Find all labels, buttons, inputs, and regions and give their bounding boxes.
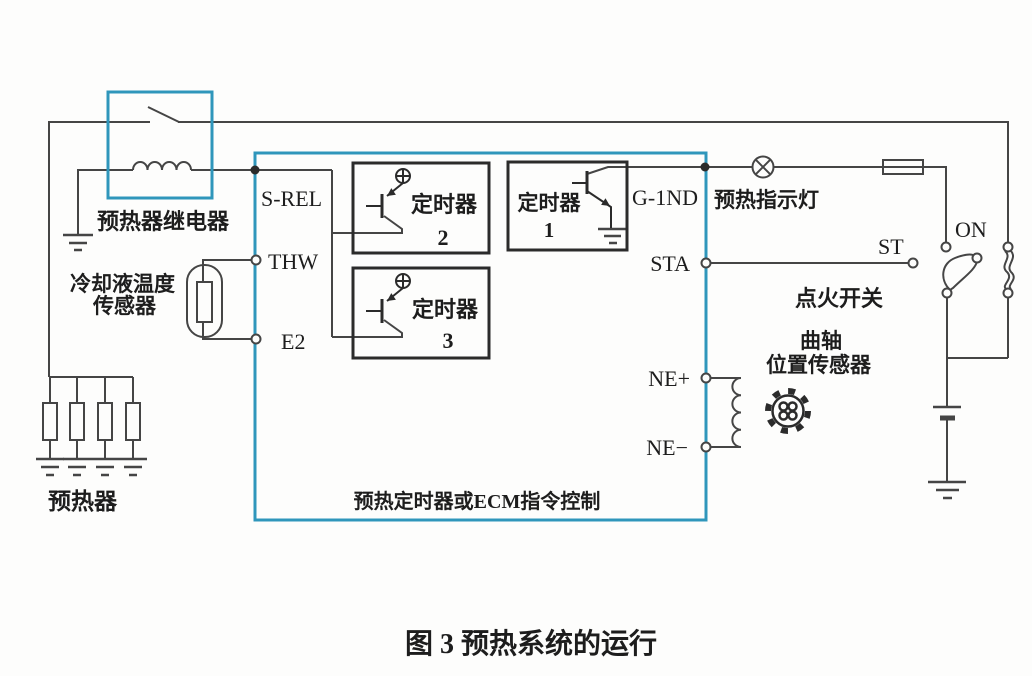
rotor-lower-contact xyxy=(943,289,952,298)
glow-plug xyxy=(43,403,57,440)
glow-relay-box xyxy=(108,92,212,198)
timer3-transistor-icon xyxy=(366,274,410,323)
coolant-sensor-label-2: 传感器 xyxy=(92,294,157,318)
timer3-label: 定时器 xyxy=(412,297,479,322)
thw-terminal xyxy=(252,256,261,265)
wavy-bottom-contact xyxy=(1004,289,1013,298)
terminal-label-thw: THW xyxy=(268,249,318,274)
labels: 预热器继电器 冷却液温度 传感器 预热器 S-REL THW E2 G-1ND … xyxy=(48,185,987,660)
glow-plug xyxy=(126,403,140,440)
ne-plus-terminal xyxy=(702,374,711,383)
glow-plugs-label: 预热器 xyxy=(48,489,118,514)
on-contact xyxy=(942,243,951,252)
terminal-label-ne-minus: NE− xyxy=(646,435,688,460)
wire-top-left xyxy=(49,122,150,377)
coolant-sensor-label-1: 冷却液温度 xyxy=(70,272,175,296)
crank-sensor-label-2: 位置传感器 xyxy=(766,353,872,377)
on-label: ON xyxy=(955,217,987,242)
figure-canvas: 预热器继电器 冷却液温度 传感器 预热器 S-REL THW E2 G-1ND … xyxy=(0,0,1032,676)
terminal-label-e2: E2 xyxy=(281,329,305,354)
ignition-switch-label: 点火开关 xyxy=(795,286,883,311)
crank-sensor-label-1: 曲轴 xyxy=(800,329,842,353)
st-label: ST xyxy=(878,234,904,259)
wire-timer3-lead xyxy=(332,320,402,337)
switch-wavy-link xyxy=(1009,251,1013,289)
terminal-label-srel: S-REL xyxy=(261,186,322,211)
glow-plug-ground-icon xyxy=(36,459,147,475)
rotor-contact xyxy=(973,254,982,263)
glow-plug-stems xyxy=(50,377,133,403)
timer2-label: 定时器 xyxy=(411,192,478,217)
glow-plug xyxy=(70,403,84,440)
srel-node xyxy=(251,166,260,175)
timer1-ground-icon xyxy=(598,229,627,243)
glow-system-diagram: 预热器继电器 冷却液温度 传感器 预热器 S-REL THW E2 G-1ND … xyxy=(0,0,1032,676)
timer1-label: 定时器 xyxy=(518,191,582,215)
glow-plug xyxy=(98,403,112,440)
timer2-transistor-icon xyxy=(366,169,410,218)
relay-coil xyxy=(133,162,191,170)
timer3-num: 3 xyxy=(443,328,454,353)
ne-pickup-coil xyxy=(732,378,741,447)
terminal-label-sta: STA xyxy=(650,251,690,276)
wire-timer1-out xyxy=(587,167,752,174)
ne-minus-terminal xyxy=(702,443,711,452)
relay-label: 预热器继电器 xyxy=(97,209,230,234)
glow-plug-tails xyxy=(50,440,133,458)
gind-node xyxy=(701,163,710,172)
wire-timer2-lead xyxy=(332,216,402,233)
terminal-label-ne-plus: NE+ xyxy=(648,366,690,391)
st-contact xyxy=(909,259,918,268)
relay-ground-icon xyxy=(63,235,93,250)
wavy-top-contact xyxy=(1004,243,1013,252)
timer2-num: 2 xyxy=(438,225,449,250)
figure-caption: 图 3 预热系统的运行 xyxy=(405,627,657,660)
wire-top-right xyxy=(178,122,1008,243)
indicator-label: 预热指示灯 xyxy=(714,188,819,212)
coolant-temp-sensor-icon xyxy=(187,265,222,337)
wire-thw xyxy=(203,260,252,282)
terminal-label-gind: G-1ND xyxy=(632,185,698,210)
wire-switch-bottom xyxy=(947,297,1008,358)
ecu-label: 预热定时器或ECM指令控制 xyxy=(354,489,601,513)
indicator-lamp-icon xyxy=(753,157,774,178)
switch-wavy-link xyxy=(1004,251,1009,289)
relay-switch-blade xyxy=(148,107,179,122)
battery-icon xyxy=(933,407,961,418)
glow-plugs xyxy=(43,403,140,440)
e2-terminal xyxy=(252,335,261,344)
sta-terminal xyxy=(702,259,711,268)
timer1-num: 1 xyxy=(544,218,555,242)
battery-ground-icon xyxy=(928,482,966,498)
crank-gear-icon xyxy=(768,391,808,431)
